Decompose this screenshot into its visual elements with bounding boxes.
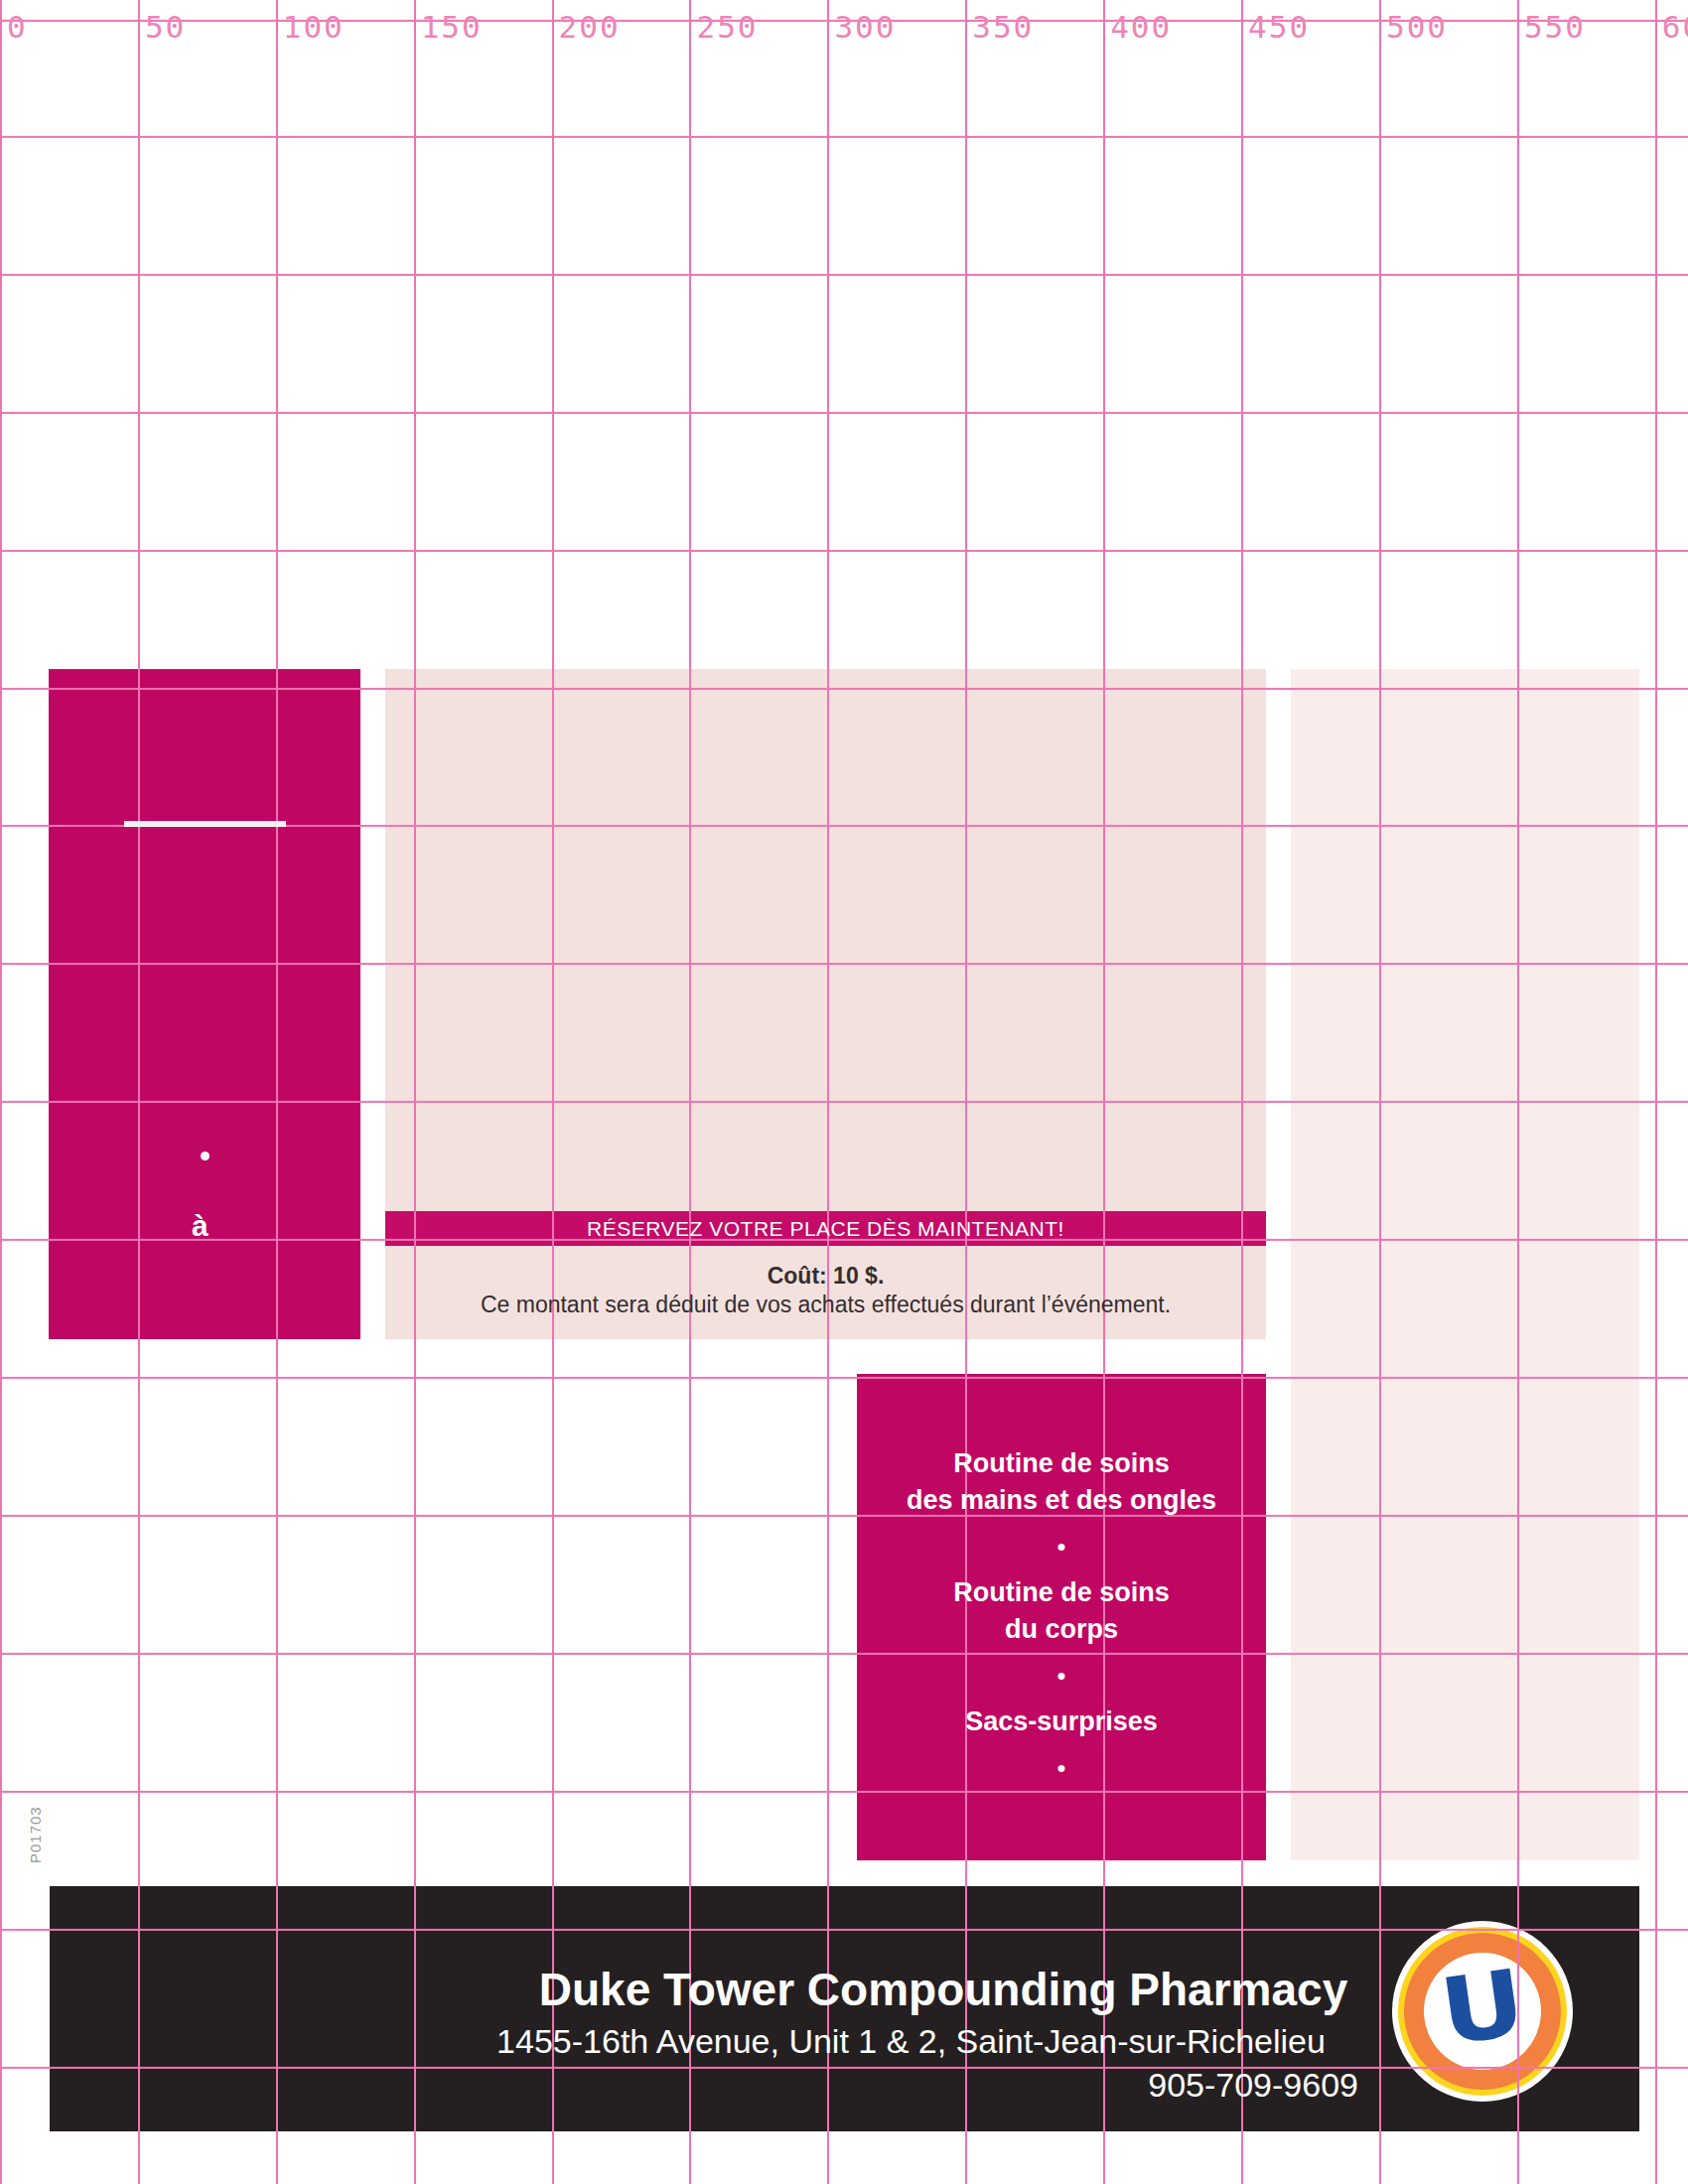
time-bullet-dot	[201, 1152, 210, 1160]
reserve-banner-text: RÉSERVEZ VOTRE PLACE DÈS MAINTENANT!	[385, 1211, 1266, 1246]
ruler-label: 250	[697, 10, 759, 44]
side-panel	[1291, 669, 1639, 1860]
service-bullet: •	[857, 1740, 1266, 1796]
pharmacy-address: 1455-16th Avenue, Unit 1 & 2, Saint-Jean…	[328, 2022, 1494, 2060]
service-item: Routine de soinsdu corps	[857, 1574, 1266, 1648]
services-text: Routine de soinsdes mains et des ongles•…	[857, 1445, 1266, 1796]
ruler-label: 200	[559, 10, 621, 44]
cost-line: Coût: 10 $.	[385, 1263, 1266, 1289]
flyer-proof-page: U 050100150200250300350400450500550600 à…	[0, 0, 1688, 2184]
ruler-label: 550	[1524, 10, 1586, 44]
ruler-label: 450	[1248, 10, 1310, 44]
ruler-label: 350	[972, 10, 1034, 44]
ruler-label: 50	[145, 10, 186, 44]
ruler-label: 500	[1386, 10, 1448, 44]
pharmacy-phone: 905-709-9609	[894, 2066, 1358, 2104]
ruler-label: 300	[834, 10, 896, 44]
ruler-label: 0	[7, 10, 28, 44]
ruler-label: 400	[1110, 10, 1172, 44]
cost-note: Ce montant sera déduit de vos achats eff…	[385, 1292, 1266, 1318]
service-bullet: •	[857, 1519, 1266, 1574]
ruler-label: 150	[421, 10, 483, 44]
service-item: Routine de soinsdes mains et des ongles	[857, 1445, 1266, 1519]
proof-code-label: P01703	[27, 1806, 44, 1863]
divider-line	[124, 821, 286, 827]
service-bullet: •	[857, 1648, 1266, 1704]
time-fragment-text: à	[192, 1211, 209, 1241]
pharmacy-name: Duke Tower Compounding Pharmacy	[397, 1965, 1489, 2014]
ruler-label: 600	[1662, 10, 1688, 44]
service-item: Sacs-surprises	[857, 1704, 1266, 1740]
ruler-label: 100	[283, 10, 345, 44]
